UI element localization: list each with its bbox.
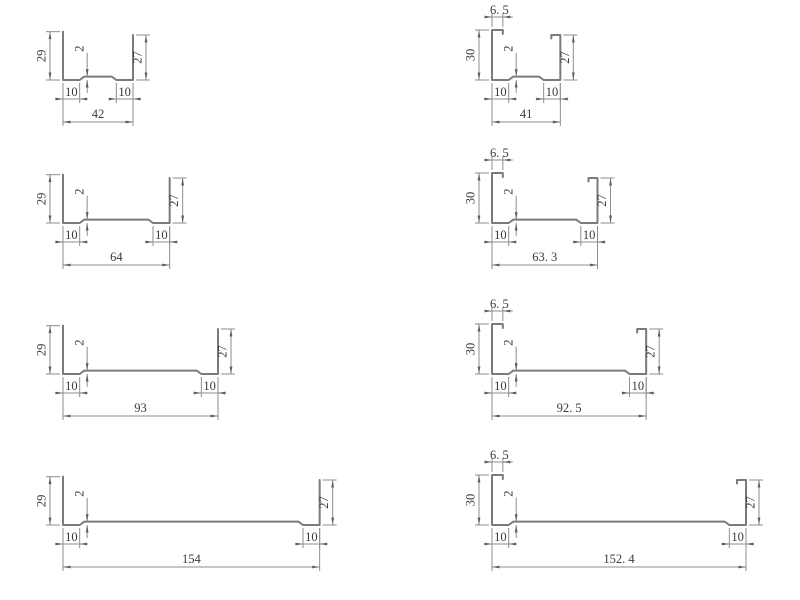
dim-width-label: 92. 5 xyxy=(557,401,582,415)
dimension-arrow xyxy=(63,121,71,124)
dimension-arrow xyxy=(509,241,517,244)
profile-group-154: 292721010154 xyxy=(35,477,337,571)
dim-flange-left-label: 10 xyxy=(65,228,78,242)
dim-flange-left-label: 10 xyxy=(494,530,507,544)
dim-step-label: 2 xyxy=(502,340,516,346)
dimension-arrow xyxy=(478,73,481,81)
drawing-page: 29272101042302721010416. 529272101064302… xyxy=(0,0,800,600)
dim-left-height-label: 30 xyxy=(464,343,478,356)
dimension-arrow xyxy=(746,543,754,546)
dimension-arrow xyxy=(49,518,52,526)
dim-left-height-label: 29 xyxy=(35,50,49,63)
dimensions: 29272101064 xyxy=(35,175,187,269)
dim-flange-right-label: 10 xyxy=(305,530,318,544)
dimension-arrow xyxy=(80,241,88,244)
dimension-arrow xyxy=(515,374,518,382)
dimension-arrow xyxy=(86,212,89,220)
dimension-arrow xyxy=(56,392,64,395)
dimension-arrow xyxy=(515,223,518,231)
dim-step-label: 2 xyxy=(502,46,516,52)
dimension-arrow xyxy=(145,73,148,81)
dimension-arrow xyxy=(560,98,568,101)
dimension-arrow xyxy=(590,264,598,267)
dim-step-label: 2 xyxy=(502,189,516,195)
dim-flange-right-label: 10 xyxy=(155,228,168,242)
dimension-arrow xyxy=(218,392,226,395)
dim-step-label: 2 xyxy=(73,491,87,497)
dimension-arrow xyxy=(86,69,89,77)
dimension-arrow xyxy=(609,178,612,186)
dim-width-label: 64 xyxy=(110,250,123,264)
dim-flange-right-label: 10 xyxy=(203,379,216,393)
dimensions: 30272101092. 56. 5 xyxy=(464,297,664,420)
profile-group-42: 29272101042 xyxy=(35,32,151,126)
dimensions: 30272101063. 36. 5 xyxy=(464,146,615,269)
dimension-arrow xyxy=(146,241,154,244)
dimension-arrow xyxy=(492,121,500,124)
dimension-arrow xyxy=(485,241,493,244)
dim-width-label: 63. 3 xyxy=(532,250,557,264)
dimension-arrow xyxy=(56,543,64,546)
dimension-arrow xyxy=(56,241,64,244)
dimension-arrow xyxy=(49,477,52,485)
dim-lip-label: 6. 5 xyxy=(490,448,509,462)
dimension-arrow xyxy=(80,392,88,395)
profile-group-152--4: 302721010152. 46. 5 xyxy=(464,448,764,571)
dim-flange-left-label: 10 xyxy=(65,379,78,393)
dimension-arrow xyxy=(80,543,88,546)
dimension-arrow xyxy=(312,566,320,569)
dimension-arrow xyxy=(126,121,134,124)
dimensions: 29272101093 xyxy=(35,326,236,420)
dimension-arrow xyxy=(63,264,71,267)
dimension-arrow xyxy=(56,98,64,101)
profile-outline xyxy=(63,175,170,223)
dim-right-height-label: 27 xyxy=(317,496,331,509)
profile-group-41: 302721010416. 5 xyxy=(464,3,578,126)
dimension-arrow xyxy=(572,35,575,43)
dimension-arrow xyxy=(86,80,89,88)
dim-left-height-label: 30 xyxy=(464,192,478,205)
profile-group-92--5: 30272101092. 56. 5 xyxy=(464,297,664,420)
dimension-arrow xyxy=(622,392,630,395)
profile-group-64: 29272101064 xyxy=(35,175,187,269)
dimension-arrow xyxy=(109,98,117,101)
dimension-arrow xyxy=(230,329,233,337)
profile-group-93: 29272101093 xyxy=(35,326,236,420)
dimension-arrow xyxy=(515,525,518,533)
dimension-arrow xyxy=(515,69,518,77)
dimension-arrow xyxy=(509,392,517,395)
dim-step-label: 2 xyxy=(502,491,516,497)
dimension-arrow xyxy=(478,367,481,375)
dim-flange-left-label: 10 xyxy=(494,85,507,99)
dim-left-height-label: 29 xyxy=(35,495,49,508)
dimension-arrow xyxy=(145,35,148,43)
profile-sections-drawing: 29272101042302721010416. 529272101064302… xyxy=(0,0,800,600)
dimension-arrow xyxy=(485,392,493,395)
dimension-arrow xyxy=(485,543,493,546)
dimension-arrow xyxy=(86,374,89,382)
dimension-arrow xyxy=(49,32,52,40)
dim-width-label: 93 xyxy=(134,401,147,415)
dimension-arrow xyxy=(515,363,518,371)
profile-outline xyxy=(492,173,598,223)
dim-lip-label: 6. 5 xyxy=(490,146,509,160)
dimension-arrow xyxy=(572,73,575,81)
dimension-arrow xyxy=(758,480,761,488)
dim-width-label: 41 xyxy=(520,107,533,121)
dimension-arrow xyxy=(658,329,661,337)
dimension-arrow xyxy=(170,241,178,244)
dimension-arrow xyxy=(49,175,52,183)
dimension-arrow xyxy=(181,216,184,224)
dim-left-height-label: 29 xyxy=(35,193,49,206)
dimension-arrow xyxy=(478,475,481,483)
dimension-arrow xyxy=(509,543,517,546)
dim-flange-left-label: 10 xyxy=(65,85,78,99)
dim-right-height-label: 27 xyxy=(644,345,658,358)
dimension-arrow xyxy=(478,216,481,224)
dimension-arrow xyxy=(646,392,654,395)
dim-left-height-label: 30 xyxy=(464,49,478,62)
dimension-arrow xyxy=(86,514,89,522)
dim-flange-left-label: 10 xyxy=(65,530,78,544)
profile-outline xyxy=(492,475,746,525)
dim-lip-label: 6. 5 xyxy=(490,3,509,17)
dimension-arrow xyxy=(758,518,761,526)
dim-flange-right-label: 10 xyxy=(731,530,744,544)
dimension-arrow xyxy=(49,326,52,334)
dim-step-label: 2 xyxy=(73,189,87,195)
dimension-arrow xyxy=(49,216,52,224)
dimension-arrow xyxy=(478,30,481,38)
profile-outline xyxy=(63,326,218,374)
dimension-arrow xyxy=(478,324,481,332)
dimension-arrow xyxy=(49,367,52,375)
dimension-arrow xyxy=(492,415,500,418)
dim-flange-right-label: 10 xyxy=(583,228,596,242)
dimension-arrow xyxy=(478,173,481,181)
dimension-arrow xyxy=(331,480,334,488)
dim-step-label: 2 xyxy=(73,46,87,52)
dim-flange-right-label: 10 xyxy=(632,379,645,393)
dimension-arrow xyxy=(80,98,88,101)
dimension-arrow xyxy=(485,98,493,101)
dimension-arrow xyxy=(573,241,581,244)
dimension-arrow xyxy=(63,566,71,569)
dim-step-label: 2 xyxy=(73,340,87,346)
dim-flange-right-label: 10 xyxy=(118,85,131,99)
dimension-arrow xyxy=(598,241,606,244)
dimension-arrow xyxy=(86,525,89,533)
dim-lip-label: 6. 5 xyxy=(490,297,509,311)
dim-flange-right-label: 10 xyxy=(546,85,559,99)
dimension-arrow xyxy=(320,543,328,546)
dimension-arrow xyxy=(515,212,518,220)
dimension-arrow xyxy=(331,518,334,526)
dim-right-height-label: 27 xyxy=(595,194,609,207)
dimension-arrow xyxy=(86,363,89,371)
dimension-arrow xyxy=(181,178,184,186)
dimension-arrow xyxy=(478,518,481,526)
dim-left-height-label: 30 xyxy=(464,494,478,507)
profile-outline xyxy=(63,32,133,80)
dimension-arrow xyxy=(162,264,170,267)
dim-flange-left-label: 10 xyxy=(494,228,507,242)
dimension-arrow xyxy=(296,543,304,546)
dimension-arrow xyxy=(609,216,612,224)
dim-left-height-label: 29 xyxy=(35,344,49,357)
dim-width-label: 42 xyxy=(92,107,105,121)
dimension-arrow xyxy=(509,98,517,101)
dimensions: 302721010416. 5 xyxy=(464,3,578,126)
dimension-arrow xyxy=(515,514,518,522)
profile-outline xyxy=(492,324,646,374)
dimension-arrow xyxy=(194,392,202,395)
dimension-arrow xyxy=(515,80,518,88)
dim-flange-left-label: 10 xyxy=(494,379,507,393)
dim-right-height-label: 27 xyxy=(558,51,572,64)
dim-right-height-label: 27 xyxy=(167,194,181,207)
dimension-arrow xyxy=(722,543,730,546)
dimensions: 302721010152. 46. 5 xyxy=(464,448,764,571)
profile-outline xyxy=(63,477,320,525)
dimension-arrow xyxy=(63,415,71,418)
dim-right-height-label: 27 xyxy=(216,345,230,358)
dimension-arrow xyxy=(739,566,747,569)
dim-width-label: 154 xyxy=(182,552,202,566)
dimension-arrow xyxy=(492,566,500,569)
dimension-arrow xyxy=(230,367,233,375)
dimension-arrow xyxy=(658,367,661,375)
dimension-arrow xyxy=(49,73,52,81)
dimension-arrow xyxy=(492,264,500,267)
dimension-arrow xyxy=(211,415,219,418)
dimension-arrow xyxy=(553,121,561,124)
dimension-arrow xyxy=(639,415,647,418)
profile-outline xyxy=(492,30,560,80)
dim-right-height-label: 27 xyxy=(744,496,758,509)
dimension-arrow xyxy=(536,98,544,101)
profile-group-63--3: 30272101063. 36. 5 xyxy=(464,146,615,269)
dimension-arrow xyxy=(86,223,89,231)
dim-right-height-label: 27 xyxy=(131,51,145,64)
dimension-arrow xyxy=(133,98,141,101)
dim-width-label: 152. 4 xyxy=(603,552,635,566)
